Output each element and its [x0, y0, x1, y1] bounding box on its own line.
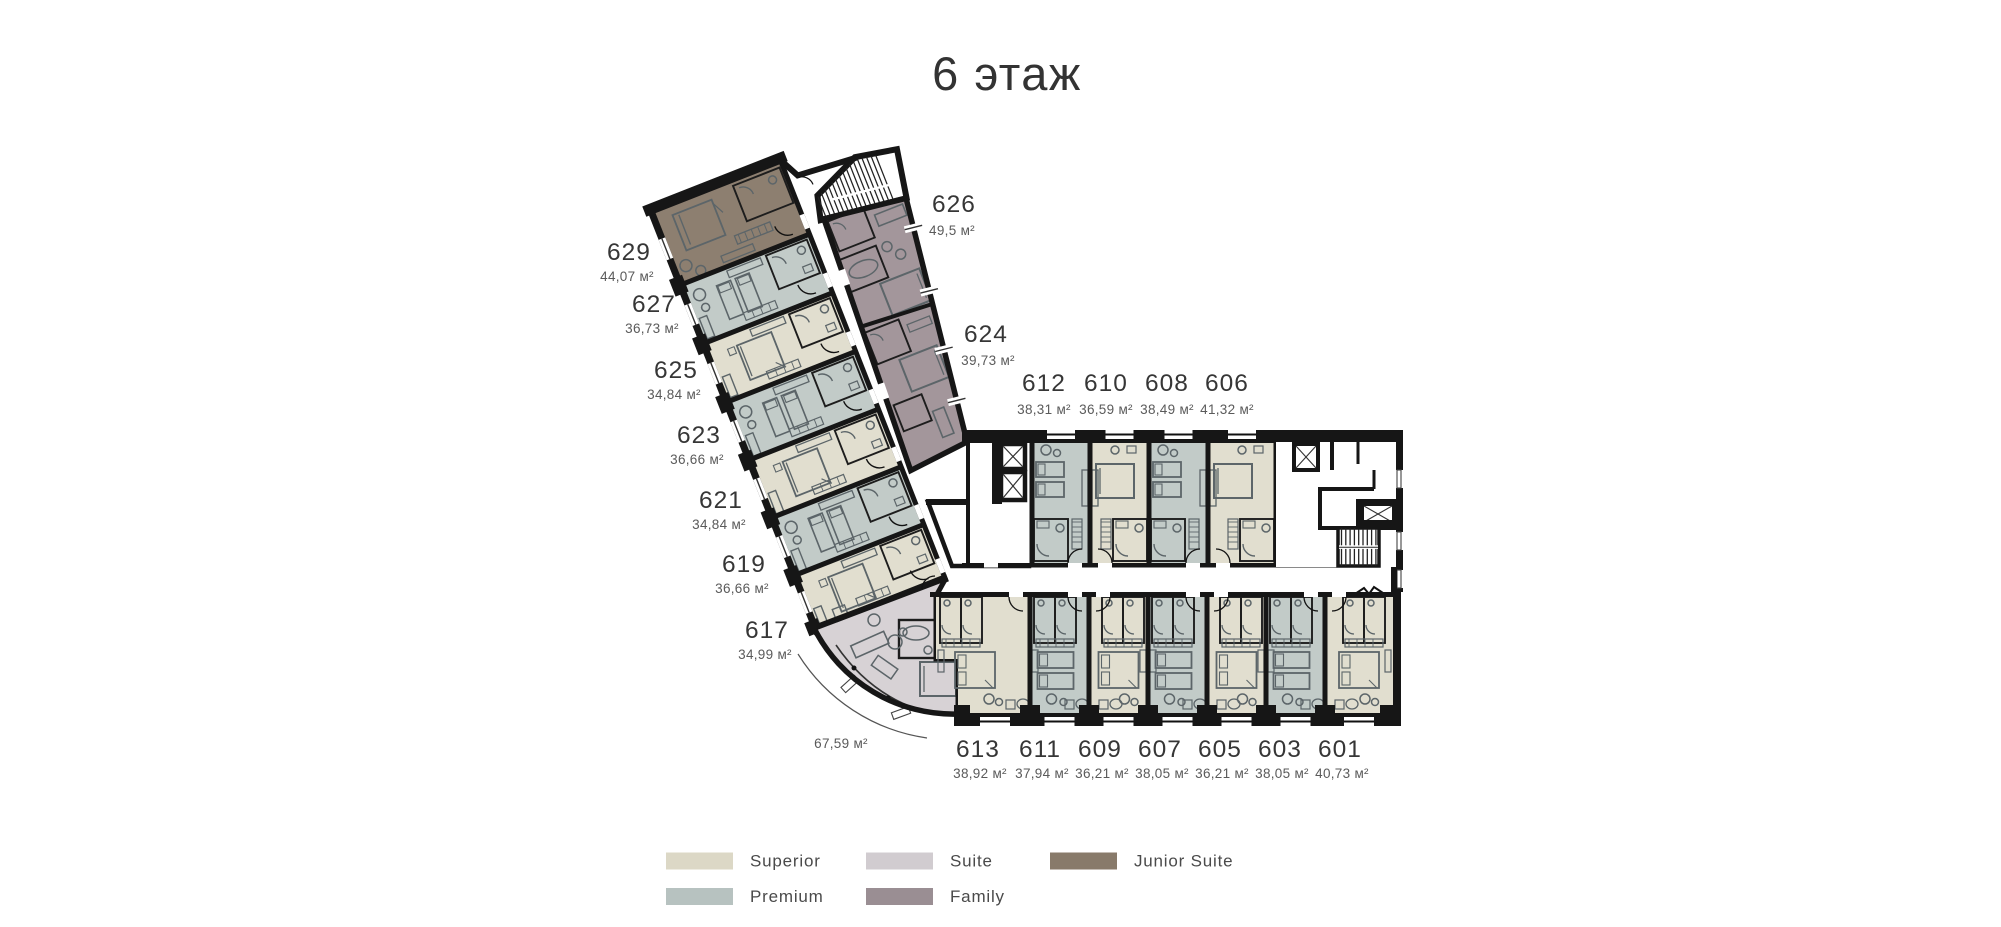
svg-text:36,59 м²: 36,59 м² — [1079, 402, 1133, 417]
svg-text:38,92 м²: 38,92 м² — [953, 766, 1007, 781]
svg-text:629: 629 — [607, 239, 651, 266]
svg-text:38,31 м²: 38,31 м² — [1017, 402, 1071, 417]
svg-text:Premium: Premium — [750, 887, 824, 906]
svg-text:41,32 м²: 41,32 м² — [1200, 402, 1254, 417]
svg-text:34,84 м²: 34,84 м² — [647, 387, 701, 402]
svg-text:625: 625 — [654, 357, 698, 384]
svg-text:617: 617 — [745, 617, 789, 644]
svg-text:619: 619 — [722, 551, 766, 578]
svg-text:38,05 м²: 38,05 м² — [1135, 766, 1189, 781]
svg-text:44,07 м²: 44,07 м² — [600, 269, 654, 284]
svg-text:36,73 м²: 36,73 м² — [625, 321, 679, 336]
svg-text:Superior: Superior — [750, 852, 821, 871]
svg-text:Suite: Suite — [950, 852, 993, 871]
svg-text:38,49 м²: 38,49 м² — [1140, 402, 1194, 417]
svg-text:621: 621 — [699, 487, 743, 514]
svg-text:36,21 м²: 36,21 м² — [1075, 766, 1129, 781]
svg-text:605: 605 — [1198, 736, 1242, 763]
svg-text:624: 624 — [964, 321, 1008, 348]
svg-text:606: 606 — [1205, 370, 1249, 397]
svg-text:609: 609 — [1078, 736, 1122, 763]
svg-text:611: 611 — [1019, 736, 1061, 763]
svg-text:603: 603 — [1258, 736, 1302, 763]
svg-text:608: 608 — [1145, 370, 1189, 397]
svg-text:626: 626 — [932, 191, 976, 218]
svg-text:601: 601 — [1318, 736, 1362, 763]
svg-text:607: 607 — [1138, 736, 1182, 763]
svg-text:36,21 м²: 36,21 м² — [1195, 766, 1249, 781]
svg-text:38,05 м²: 38,05 м² — [1255, 766, 1309, 781]
svg-text:610: 610 — [1084, 370, 1128, 397]
svg-text:34,84 м²: 34,84 м² — [692, 517, 746, 532]
svg-text:40,73 м²: 40,73 м² — [1315, 766, 1369, 781]
svg-text:49,5 м²: 49,5 м² — [929, 223, 975, 238]
svg-text:613: 613 — [956, 736, 1000, 763]
svg-text:623: 623 — [677, 422, 721, 449]
svg-text:36,66 м²: 36,66 м² — [715, 581, 769, 596]
svg-text:37,94 м²: 37,94 м² — [1015, 766, 1069, 781]
svg-text:6 этаж: 6 этаж — [932, 47, 1082, 100]
svg-text:627: 627 — [632, 291, 676, 318]
svg-text:39,73 м²: 39,73 м² — [961, 353, 1015, 368]
svg-text:Junior Suite: Junior Suite — [1134, 852, 1233, 871]
svg-text:Family: Family — [950, 887, 1005, 906]
svg-text:34,99 м²: 34,99 м² — [738, 647, 792, 662]
svg-text:67,59 м²: 67,59 м² — [814, 736, 868, 751]
svg-text:36,66 м²: 36,66 м² — [670, 452, 724, 467]
svg-text:612: 612 — [1022, 370, 1066, 397]
